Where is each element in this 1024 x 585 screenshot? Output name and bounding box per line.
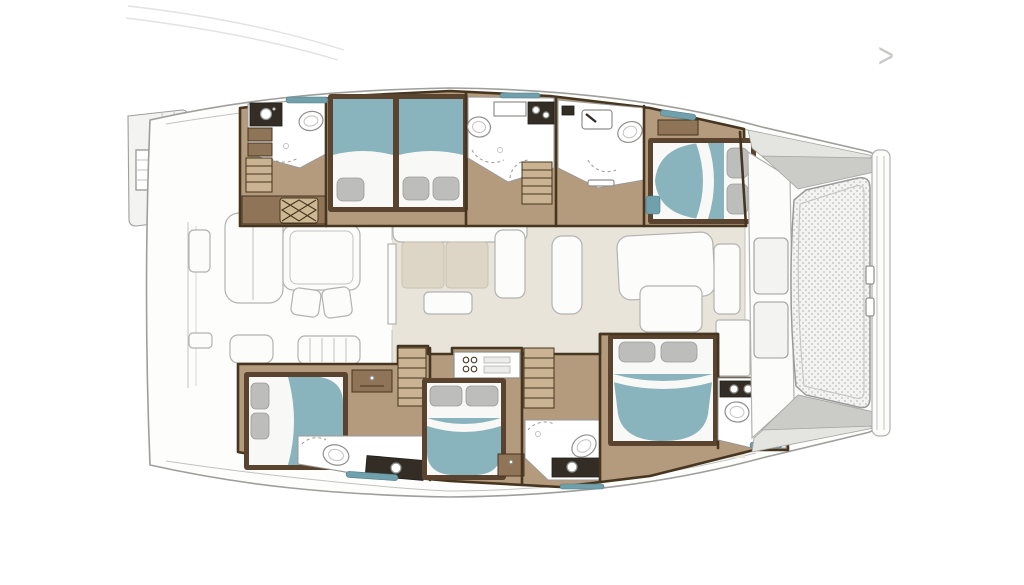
chaise-shape	[552, 236, 582, 314]
roof-line	[128, 6, 344, 50]
fwd-door-step	[714, 244, 740, 314]
coffee-table[interactable]: Coffee table	[424, 292, 472, 314]
floor-plan-page: Catamaran yacht deck floor plan Port swi…	[0, 0, 1024, 585]
sink	[543, 112, 549, 118]
step-pad	[189, 230, 210, 272]
lounge-step	[640, 286, 702, 332]
stbd-fwd-cabin: Starboard forward cabin	[600, 334, 718, 448]
fwd-cabinet	[716, 320, 750, 376]
stair-flight	[246, 158, 272, 192]
shelf	[248, 128, 272, 141]
hatch-rug	[280, 198, 318, 223]
table-shape	[424, 292, 472, 314]
galley-counter: Galley counter	[454, 352, 520, 378]
hanger-hook	[509, 460, 513, 464]
stairs-stbd[interactable]: Starboard companionway stairs	[524, 348, 554, 408]
pillow	[337, 178, 364, 201]
chaise: Saloon chaise	[552, 236, 582, 314]
fixture	[562, 106, 574, 115]
beam-cleat	[866, 298, 874, 316]
beam-shape	[872, 150, 890, 436]
sofa-cushion	[446, 242, 488, 288]
hull-window	[560, 484, 604, 489]
foredeck: Foredeck lockers	[748, 152, 794, 438]
port-fwd-head: Port forward bathroom	[558, 100, 645, 188]
sink	[533, 107, 540, 114]
deck-locker[interactable]	[754, 238, 788, 294]
deck-locker[interactable]	[754, 302, 788, 358]
cockpit-chair[interactable]	[290, 287, 321, 318]
pillow	[251, 413, 269, 439]
step-pad	[189, 333, 212, 348]
sink	[391, 463, 401, 473]
pleated-bench	[298, 336, 360, 364]
side-shelf	[658, 120, 698, 135]
sink-basin	[484, 357, 510, 363]
carousel-next-icon[interactable]: >	[872, 38, 901, 78]
duvet-fold	[272, 377, 294, 465]
pillow	[661, 342, 697, 362]
pillow	[727, 148, 748, 178]
shower-tray	[582, 110, 612, 129]
door-leaf	[588, 180, 614, 186]
stairs-port-aft[interactable]: Port aft stairs	[246, 158, 272, 192]
sink	[261, 109, 272, 120]
counter-top	[454, 352, 520, 378]
floor-plan-svg: Catamaran yacht deck floor plan Port swi…	[0, 0, 1024, 585]
stair-flight	[522, 162, 552, 204]
wardrobe	[498, 454, 524, 476]
pillow	[430, 386, 462, 406]
sofa-cushion	[402, 242, 444, 288]
hanger-hook	[370, 376, 374, 380]
wardrobe	[352, 370, 392, 392]
deck-hatch	[286, 97, 328, 103]
pillow	[619, 342, 655, 362]
pillow	[251, 383, 269, 409]
sink-basin	[484, 366, 510, 373]
appliance	[528, 102, 554, 124]
beam-cleat	[866, 266, 874, 284]
stairs-stbd-aft[interactable]: Starboard aft stairs	[398, 348, 426, 406]
deck-hatch	[500, 93, 540, 98]
wardrobe-shape	[352, 370, 392, 392]
roof-edge-lines	[126, 6, 344, 60]
port-corridor	[242, 196, 326, 224]
foredeck-strip	[748, 152, 794, 438]
cockpit-chair[interactable]	[321, 286, 353, 319]
saloon-sofa: Saloon L-sofa	[393, 220, 527, 298]
duvet-fold-left	[333, 151, 393, 170]
faucet	[273, 108, 276, 111]
pillow	[403, 177, 429, 200]
bench-shape	[298, 336, 360, 364]
cockpit-table[interactable]: Cockpit dining table	[283, 225, 360, 290]
sink	[567, 462, 577, 472]
pillow	[466, 386, 498, 406]
table-top	[283, 225, 360, 290]
seat-cushion	[646, 196, 660, 214]
trampoline: Bow trampoline	[791, 178, 870, 408]
stair-flight	[398, 348, 426, 406]
sofa-arm	[495, 230, 525, 298]
port-mid-cabin: Port guest cabin	[328, 94, 468, 212]
cockpit-seat	[230, 335, 273, 363]
shelf	[248, 143, 272, 156]
sliding-door[interactable]	[388, 244, 396, 324]
counter	[494, 102, 526, 116]
wardrobe-shape	[498, 454, 524, 476]
stairs-port[interactable]: Port companionway stairs	[522, 162, 552, 204]
pillow	[433, 177, 459, 200]
duvet-fold-right	[399, 151, 463, 170]
sink	[730, 385, 738, 393]
